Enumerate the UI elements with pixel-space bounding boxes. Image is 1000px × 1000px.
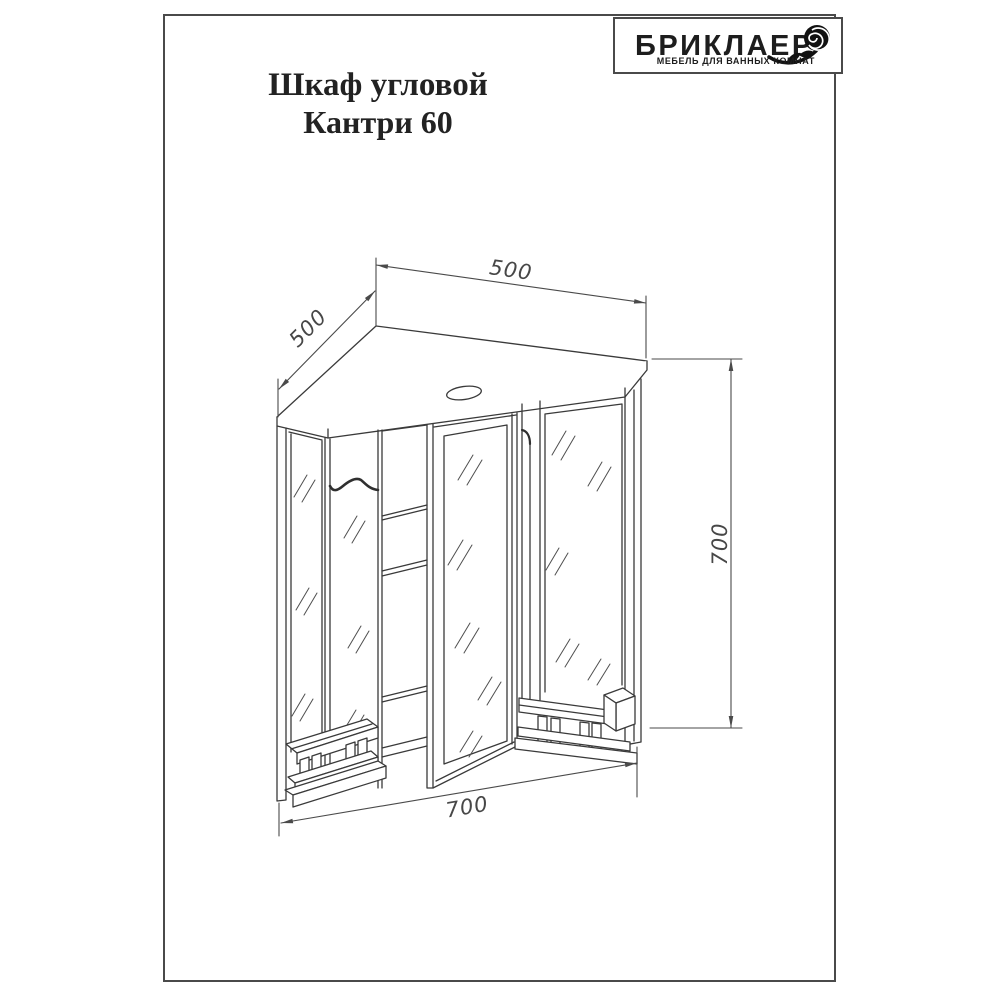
balustrade-shelf-right <box>515 688 637 764</box>
rose-icon <box>761 21 835 74</box>
brand-logo-box: БРИКЛАЕР МЕБЕЛЬ ДЛЯ ВАННЫХ КОМНАТ <box>613 17 843 74</box>
title-line-2: Кантри 60 <box>163 104 593 141</box>
dimension-label-left-depth: 500 <box>284 304 331 351</box>
cabinet-top-board <box>277 326 647 438</box>
brand-tagline: МЕБЕЛЬ ДЛЯ ВАННЫХ КОМНАТ <box>657 56 815 66</box>
drawing-title: Шкаф угловой Кантри 60 <box>163 66 593 141</box>
page: Шкаф угловой Кантри 60 БРИКЛАЕР МЕБЕЛЬ Д… <box>0 0 1000 1000</box>
dimension-label-height: 700 <box>708 522 732 565</box>
balustrade-shelf-left <box>285 719 386 807</box>
dimension-label-top-width: 500 <box>488 255 534 285</box>
title-line-1: Шкаф угловой <box>163 66 593 104</box>
technical-drawing: 500 500 700 700 <box>0 0 1000 1000</box>
dimension-label-front-width: 700 <box>444 792 490 823</box>
